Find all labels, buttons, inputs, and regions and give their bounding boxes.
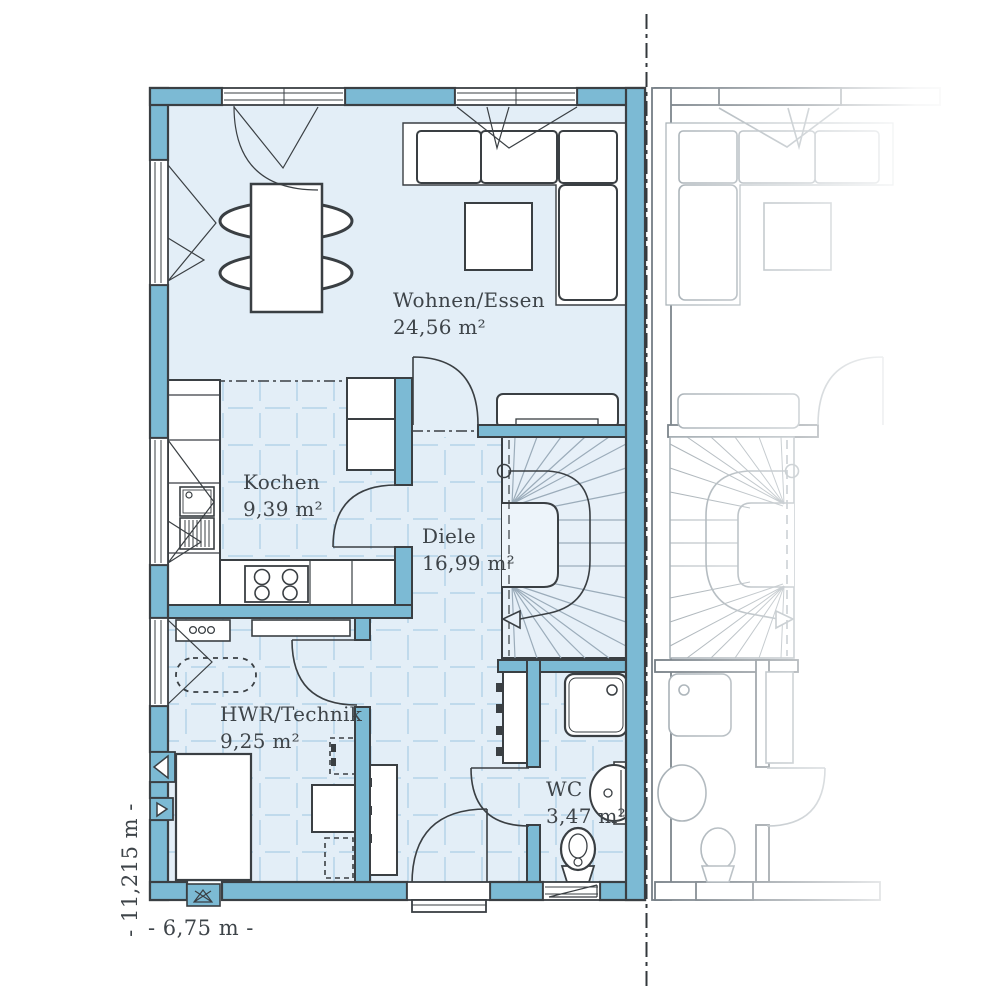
neighbor-furniture [658, 108, 893, 882]
window-hwr [150, 618, 168, 706]
bottom-vent-box [187, 884, 220, 906]
kitchen-sink [180, 487, 214, 516]
room-area: 16,99 m² [422, 550, 515, 577]
floor-plan-page: Wohnen/Essen 24,56 m² Kochen 9,39 m² Die… [0, 0, 1000, 1000]
entrance-step [412, 900, 486, 912]
wall-hwr-diele-stub [355, 618, 370, 640]
room-area: 3,47 m² [546, 803, 626, 830]
wall-stair-bottom [498, 660, 626, 672]
wall-kochen-hwr [168, 605, 412, 618]
room-label-hwr: HWR/Technik 9,25 m² [220, 701, 362, 755]
dimension-width-label: - 6,75 m - [148, 916, 254, 940]
room-area: 9,39 m² [243, 496, 323, 523]
dimension-height-label: - 11,215 m - [118, 803, 142, 937]
room-label-wohnen: Wohnen/Essen 24,56 m² [393, 287, 545, 341]
room-area: 24,56 m² [393, 314, 545, 341]
wardrobe-1 [503, 672, 530, 763]
wall-kochen-diele-upper [395, 378, 412, 485]
room-label-diele: Diele 16,99 m² [422, 523, 515, 577]
tech-unit [176, 754, 251, 880]
sideboard [497, 394, 618, 428]
wardrobe-2 [370, 765, 397, 875]
wall-stair-top [478, 425, 628, 437]
room-label-kochen: Kochen 9,39 m² [243, 469, 323, 523]
entrance-opening [407, 882, 490, 900]
room-label-wc: WC 3,47 m² [546, 776, 626, 830]
party-wall [626, 88, 645, 900]
window-kitchen [150, 438, 168, 565]
shower [565, 674, 627, 736]
room-name: Diele [422, 523, 515, 550]
window-living [150, 160, 168, 285]
room-name: WC [546, 776, 626, 803]
room-name: Wohnen/Essen [393, 287, 545, 314]
dining-table [251, 184, 322, 312]
wall-wc-upper [527, 660, 540, 767]
toilet [561, 828, 595, 882]
neighbor-unit [652, 88, 940, 900]
room-area: 9,25 m² [220, 728, 362, 755]
kitchen-tall-unit-2 [347, 419, 395, 470]
room-name: HWR/Technik [220, 701, 362, 728]
hwr-shelf [252, 620, 350, 636]
staircase [498, 437, 627, 658]
kitchen-tall-unit-1 [347, 378, 395, 419]
hwr-table [312, 785, 357, 832]
coffee-table [465, 203, 532, 270]
hwr-counter [176, 620, 230, 641]
shower-drain [607, 685, 617, 695]
room-name: Kochen [243, 469, 323, 496]
wall-wc-lower [527, 825, 540, 882]
floor-plan-drawing [0, 0, 1000, 1000]
cooktop [245, 566, 308, 602]
